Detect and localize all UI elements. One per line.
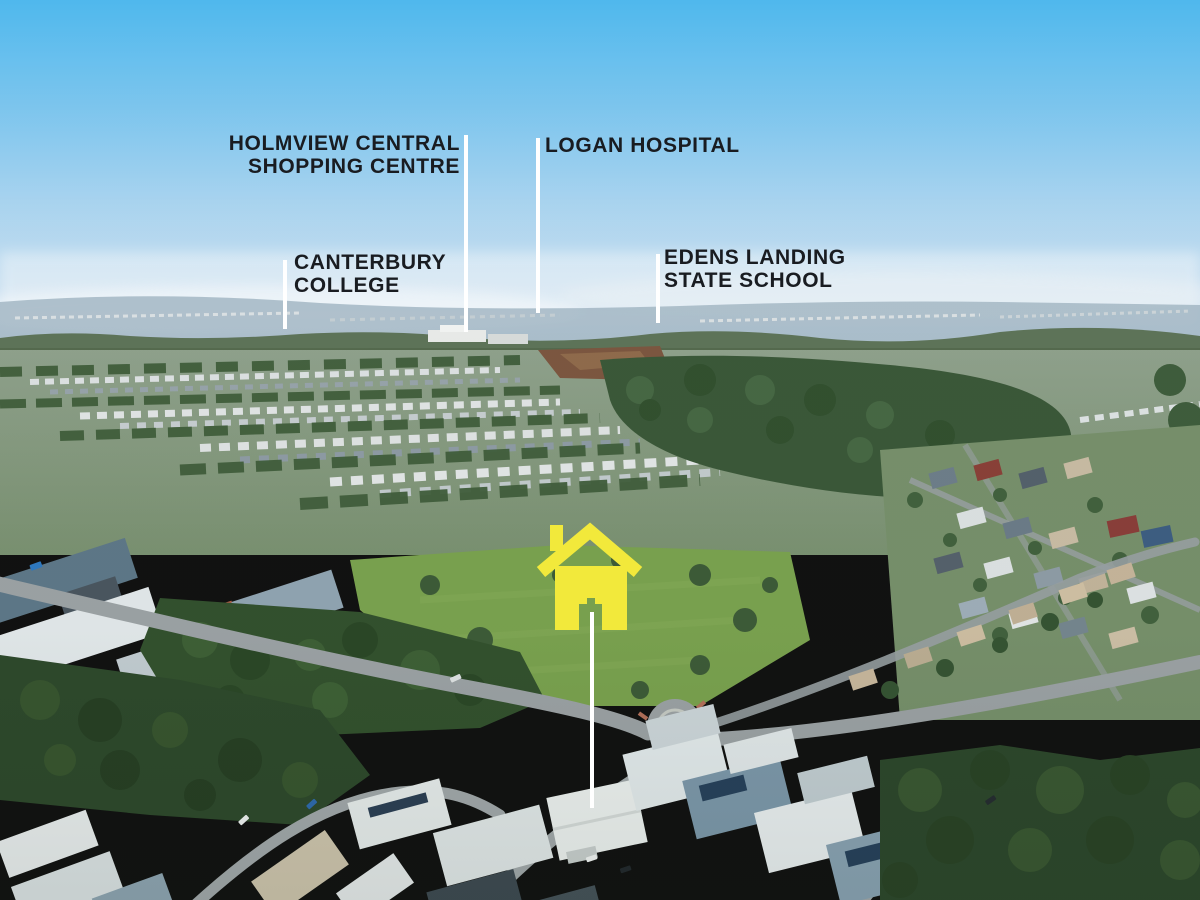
label-line: LOGAN HOSPITAL [545, 134, 740, 157]
label-line: CANTERBURY [294, 251, 446, 274]
marker-pointer-line [590, 612, 594, 808]
label-line: HOLMVIEW CENTRAL [229, 132, 460, 155]
leader-line-canterbury-college [283, 260, 287, 329]
landmark-label-logan-hospital: LOGAN HOSPITAL [545, 134, 740, 157]
label-line: COLLEGE [294, 274, 400, 297]
landmark-label-holmview-central-shopping-centre: HOLMVIEW CENTRAL SHOPPING CENTRE [229, 132, 460, 178]
annotation-overlay: HOLMVIEW CENTRAL SHOPPING CENTRE LOGAN H… [0, 0, 1200, 900]
leader-line-holmview [464, 135, 468, 332]
label-line: SHOPPING CENTRE [248, 155, 460, 178]
label-line: EDENS LANDING [664, 246, 846, 269]
landmark-label-edens-landing-state-school: EDENS LANDING STATE SCHOOL [664, 246, 846, 292]
label-line: STATE SCHOOL [664, 269, 833, 292]
leader-line-logan-hospital [536, 138, 540, 313]
leader-line-edens-landing [656, 254, 660, 323]
landmark-label-canterbury-college: CANTERBURY COLLEGE [294, 251, 446, 297]
annotated-aerial-photo: HOLMVIEW CENTRAL SHOPPING CENTRE LOGAN H… [0, 0, 1200, 900]
